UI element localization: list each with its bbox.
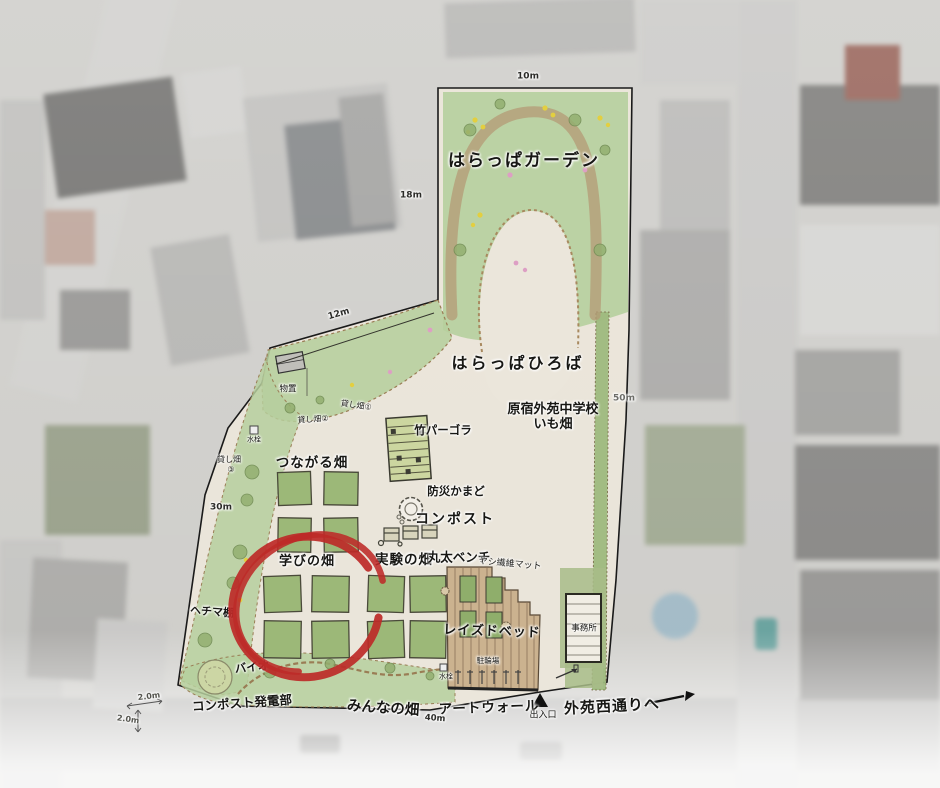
dim-north: 10m bbox=[517, 72, 539, 81]
car bbox=[300, 735, 340, 753]
building-block bbox=[640, 0, 740, 85]
building-block bbox=[800, 570, 940, 700]
dim-west-lower: 30m bbox=[210, 503, 232, 512]
building-block bbox=[45, 210, 95, 265]
label-rental-field-3b: ③ bbox=[227, 466, 234, 474]
label-water-tap-lower: 水栓 bbox=[439, 673, 453, 680]
building-block bbox=[795, 350, 900, 435]
label-water-tap-upper: 水栓 bbox=[247, 436, 261, 443]
red-roof-building bbox=[845, 45, 900, 100]
dim-south: 40m bbox=[424, 714, 445, 724]
label-harappa-hiroba: はらっぱひろば bbox=[451, 356, 584, 373]
aerial-background bbox=[0, 0, 940, 788]
label-bio-nest: バイオ bbox=[234, 659, 270, 675]
building-block bbox=[43, 76, 186, 198]
building-block bbox=[795, 445, 940, 560]
label-compost: コンポスト bbox=[415, 513, 495, 528]
label-art-wall: アートウォール bbox=[438, 699, 539, 717]
car bbox=[520, 742, 562, 760]
label-tsunagaru-field: つながる畑 bbox=[276, 456, 349, 470]
road bbox=[737, 0, 797, 788]
label-entrance: 出入口 bbox=[529, 711, 556, 720]
label-school-field-2: いも畑 bbox=[533, 418, 572, 432]
building-block bbox=[181, 66, 249, 139]
building-block bbox=[640, 230, 730, 400]
label-storage: 物置 bbox=[279, 386, 296, 395]
building-block bbox=[444, 0, 636, 58]
label-manabi-field: 学びの畑 bbox=[279, 555, 335, 569]
building-block bbox=[800, 85, 940, 205]
site-plan-screenshot: はらっぱガーデン はらっぱひろば 原宿外苑中学校 いも畑 竹パーゴラ 防災かまど… bbox=[0, 0, 940, 788]
label-harappa-garden: はらっぱガーデン bbox=[448, 153, 600, 171]
building-block bbox=[800, 225, 940, 335]
label-disaster-stove: 防災かまど bbox=[427, 485, 485, 497]
building-block bbox=[60, 290, 130, 350]
building-block bbox=[0, 100, 45, 320]
label-bicycle-parking: 駐輪場 bbox=[477, 657, 500, 665]
building-block bbox=[150, 234, 250, 366]
teal-car bbox=[755, 618, 777, 650]
label-hechima-trellis: ヘチマ棚 bbox=[190, 605, 235, 620]
label-jikken-field: 実験の畑 bbox=[375, 553, 433, 567]
label-office: 事務所 bbox=[571, 625, 597, 634]
label-rental-field-3a: 貸し畑 bbox=[217, 456, 241, 464]
dim-west-upper: 18m bbox=[400, 191, 422, 200]
dim-east: 50m bbox=[613, 394, 635, 403]
label-school-field-1: 原宿外苑中学校 bbox=[507, 403, 598, 417]
pool bbox=[652, 593, 698, 639]
vegetation bbox=[645, 425, 745, 545]
label-bamboo-pergola: 竹パーゴラ bbox=[414, 424, 472, 436]
label-raised-bed: レイズドベッド bbox=[443, 623, 541, 640]
vegetation bbox=[45, 425, 150, 535]
